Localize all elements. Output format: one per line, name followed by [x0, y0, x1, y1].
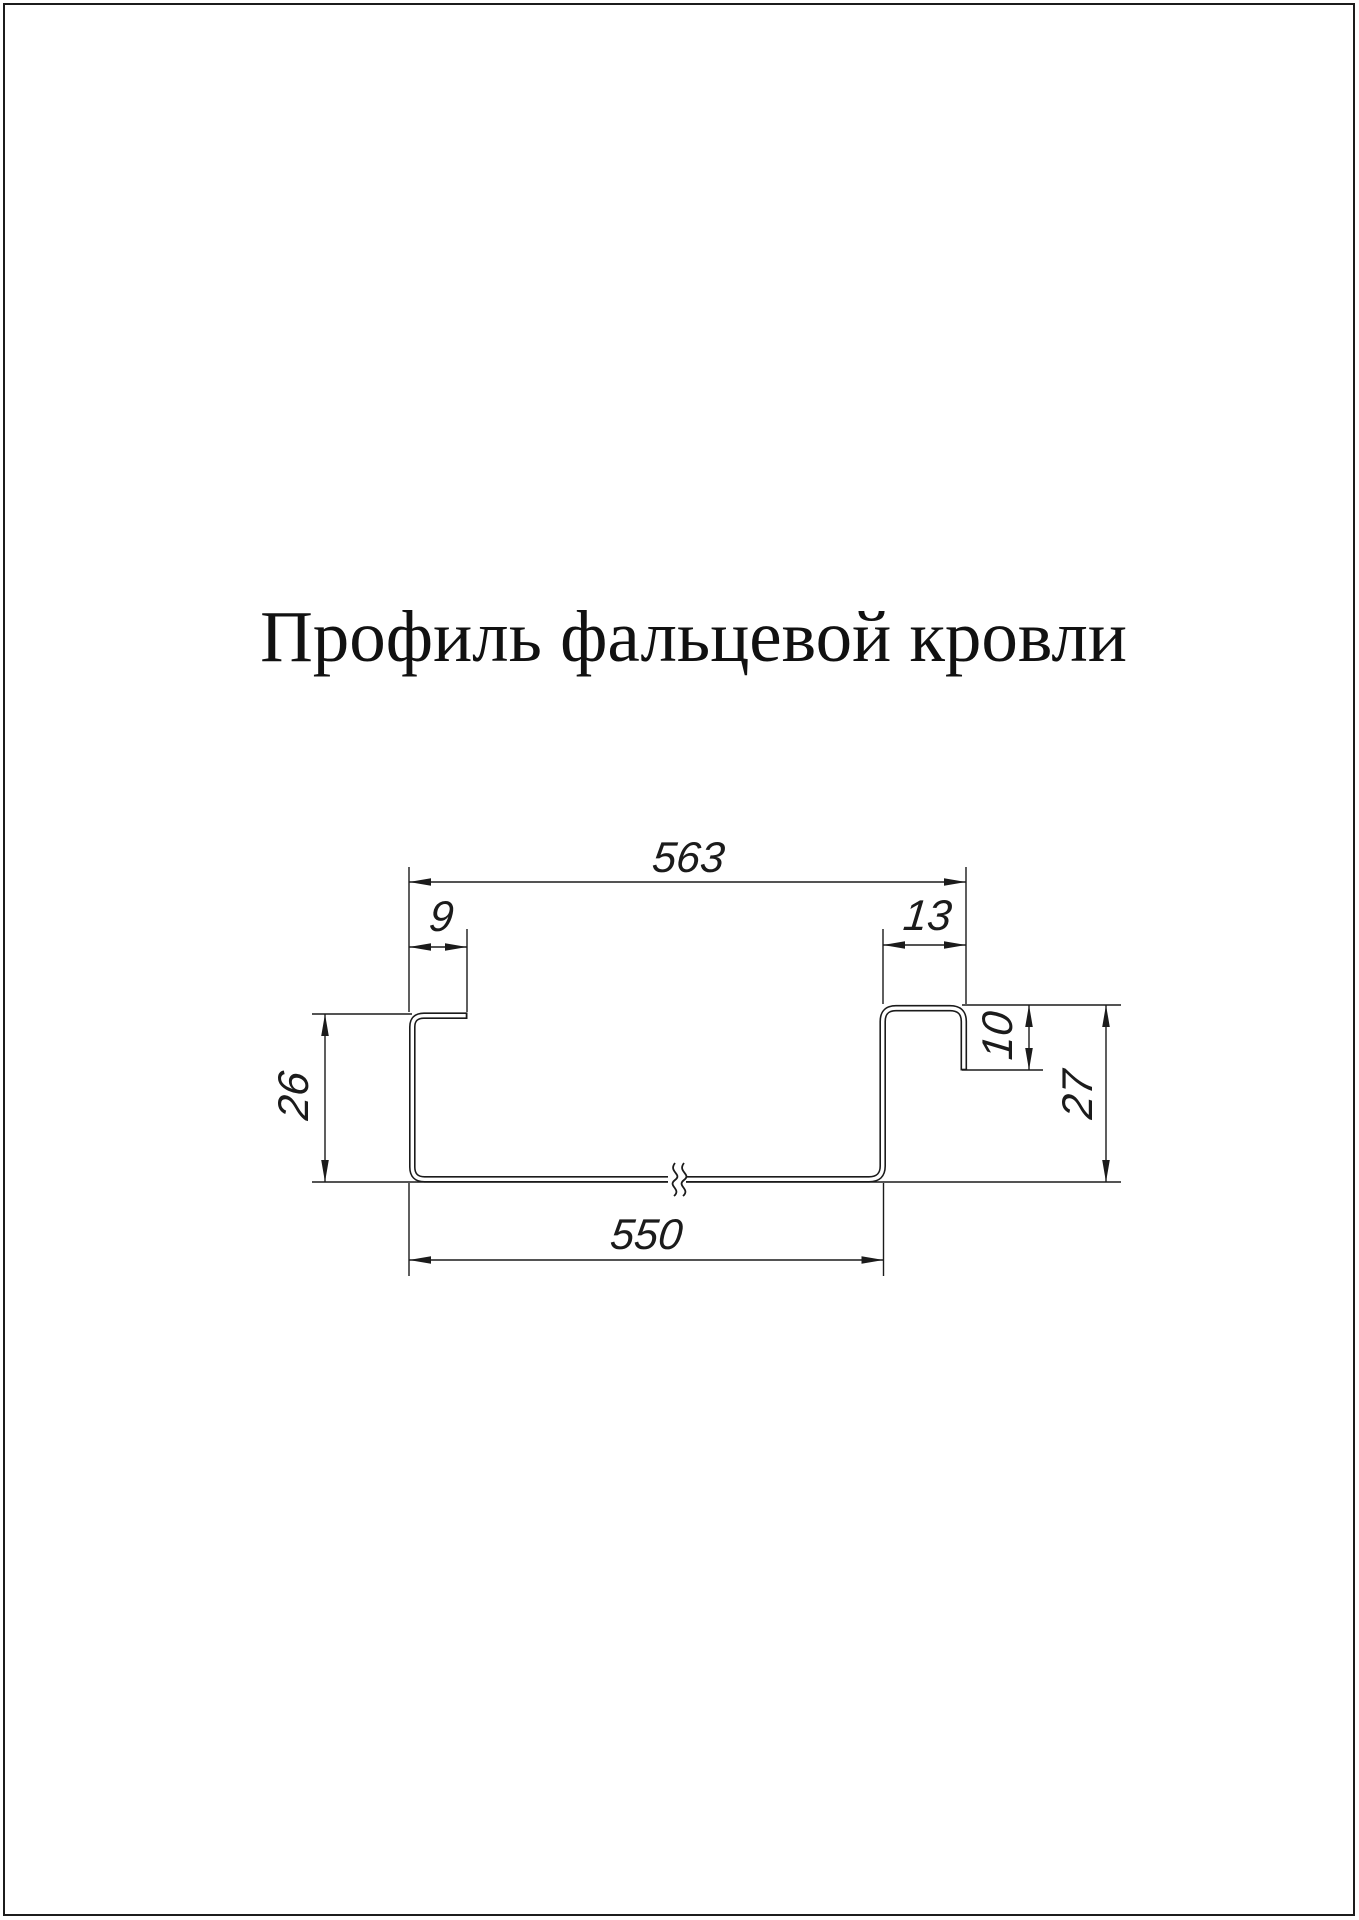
dim-550-label: 550 — [608, 1211, 685, 1259]
dim-27-label: 27 — [1054, 1066, 1102, 1122]
dim-13-arrow-right — [944, 941, 966, 949]
dim-10-arrow-up — [1025, 1005, 1033, 1027]
dim-563-label: 563 — [650, 834, 727, 882]
dim-9-label: 9 — [427, 893, 456, 941]
dim-550-arrow-left — [409, 1256, 431, 1264]
dim-26-arrow-down — [321, 1160, 329, 1182]
dim-13: 13 — [883, 892, 966, 949]
dim-10-label: 10 — [974, 1009, 1022, 1062]
dim-10-arrow-down — [1025, 1048, 1033, 1070]
dim-563-arrow-right — [944, 878, 966, 886]
dim-27: 27 — [1054, 1005, 1110, 1182]
profile-outline — [412, 1008, 967, 1196]
dim-13-arrow-left — [883, 941, 905, 949]
dim-563: 563 — [409, 834, 966, 886]
dim-26-arrow-up — [321, 1014, 329, 1036]
dim-550-arrow-right — [862, 1256, 884, 1264]
drawing-canvas: 563 9 13 550 26 — [0, 0, 1359, 1920]
dim-563-arrow-left — [409, 878, 431, 886]
dim-550: 550 — [409, 1211, 884, 1264]
dim-13-label: 13 — [901, 892, 954, 940]
dim-10: 10 — [974, 1005, 1033, 1070]
profile-inner-stroke — [412, 1008, 964, 1179]
dim-27-arrow-up — [1102, 1005, 1110, 1027]
dim-9-arrow-right — [445, 943, 467, 951]
dim-26-label: 26 — [270, 1069, 318, 1123]
dim-9: 9 — [409, 893, 467, 951]
page: Профиль фальцевой кровли — [0, 0, 1359, 1920]
dim-9-arrow-left — [409, 943, 431, 951]
dim-27-arrow-down — [1102, 1160, 1110, 1182]
dim-26: 26 — [270, 1014, 329, 1182]
